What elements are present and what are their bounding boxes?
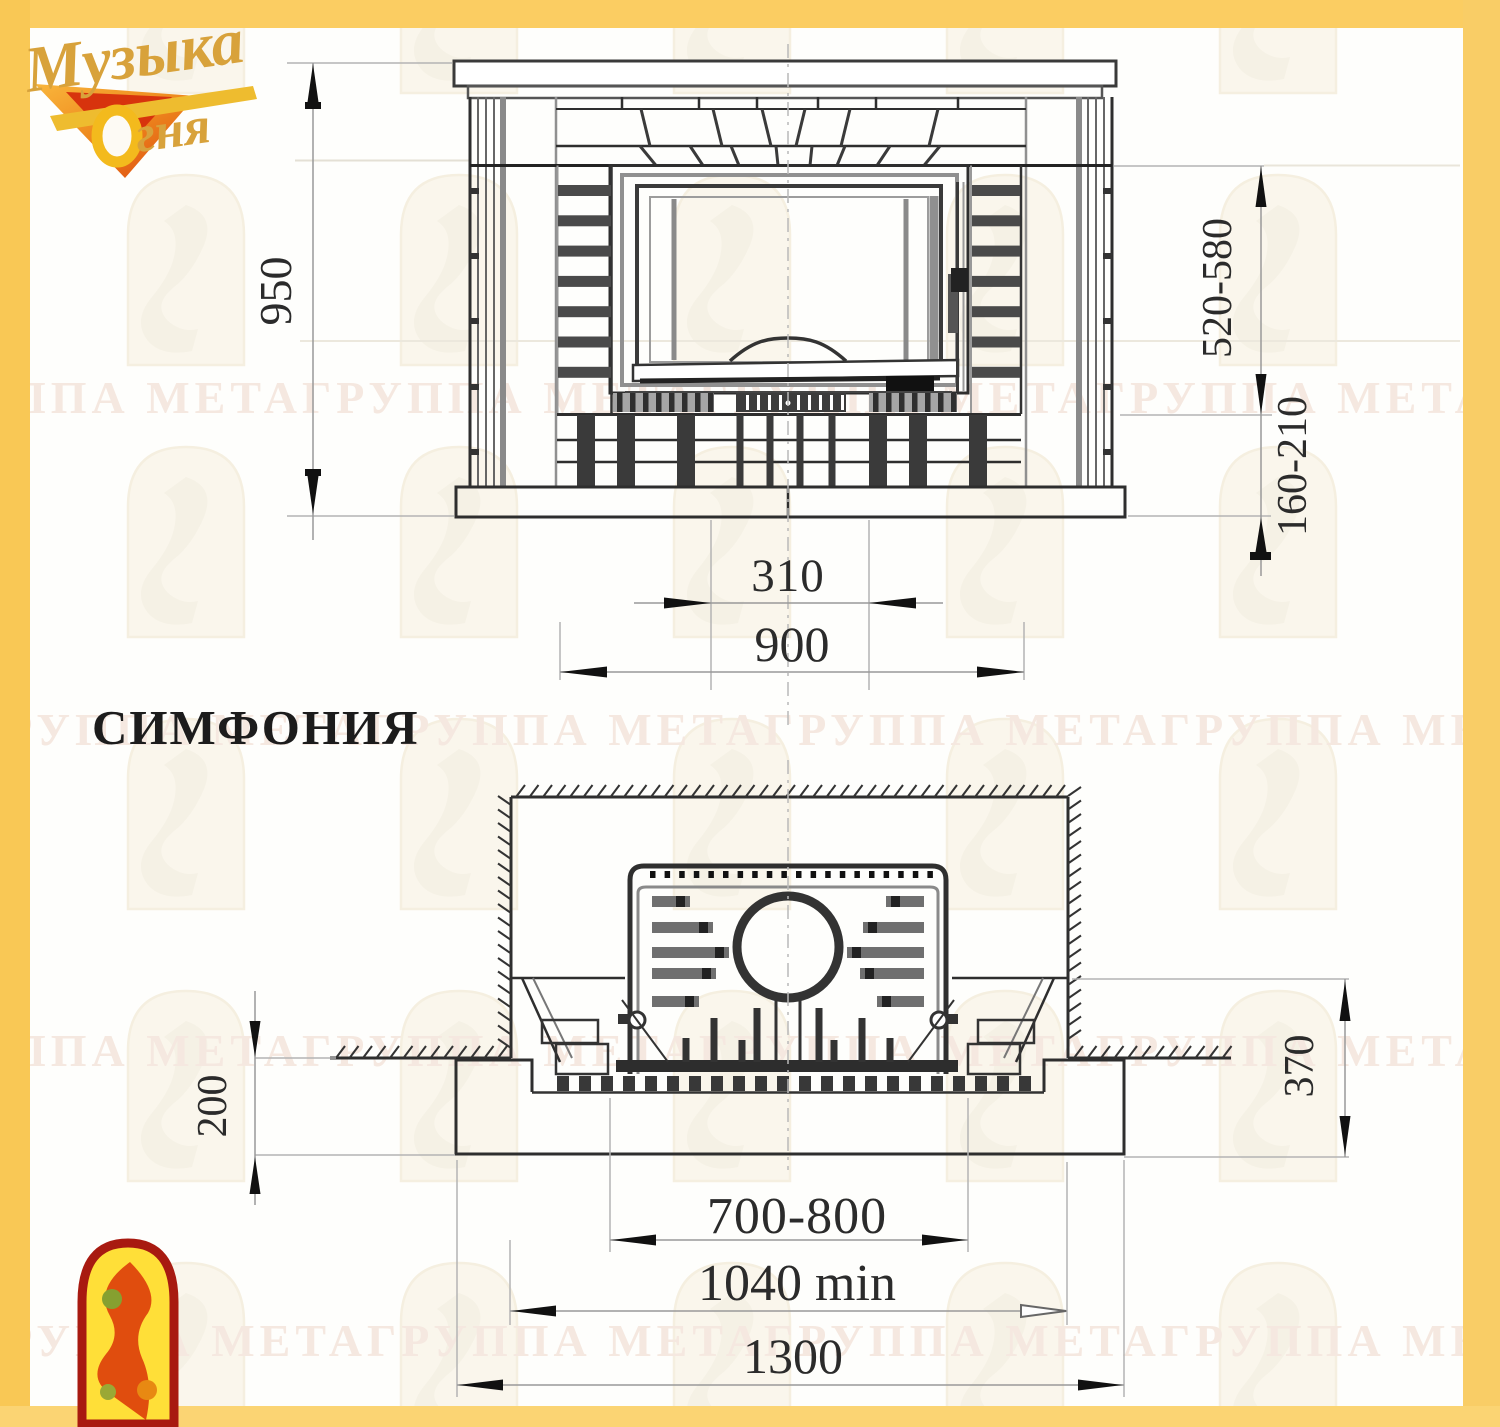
- svg-text:1300: 1300: [743, 1328, 843, 1384]
- svg-text:520-580: 520-580: [1195, 218, 1241, 358]
- svg-text:гня: гня: [132, 97, 214, 164]
- svg-text:СИМФОНИЯ: СИМФОНИЯ: [92, 700, 420, 755]
- svg-text:900: 900: [755, 616, 830, 672]
- svg-text:1040 min: 1040 min: [698, 1255, 896, 1312]
- svg-text:950: 950: [250, 257, 301, 326]
- svg-text:700-800: 700-800: [707, 1188, 887, 1245]
- svg-text:200: 200: [190, 1075, 236, 1138]
- svg-text:160-210: 160-210: [1270, 396, 1316, 536]
- svg-text:310: 310: [751, 550, 825, 602]
- svg-text:370: 370: [1277, 1035, 1323, 1098]
